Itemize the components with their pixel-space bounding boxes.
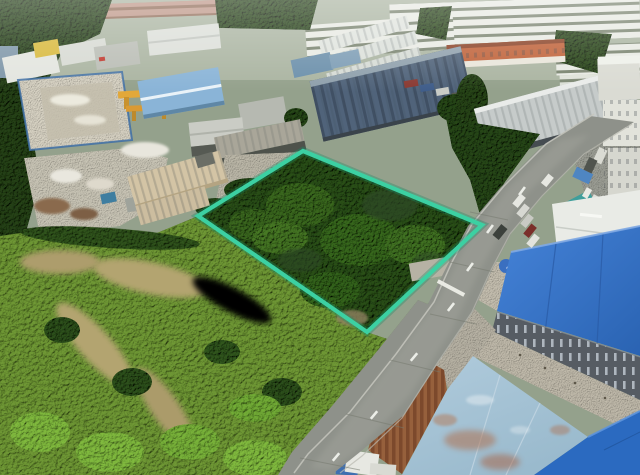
shophouse-windows (604, 100, 640, 200)
atmospheric-haze (0, 0, 640, 92)
grass-bright (76, 432, 144, 472)
construction-debris (74, 115, 106, 125)
grass-bright (223, 440, 287, 475)
apron-speck (604, 397, 607, 400)
debris-pile (86, 178, 114, 190)
scrap-pile (34, 198, 70, 214)
bush-clump (44, 317, 80, 343)
bush-clump (112, 368, 152, 396)
apron-speck (574, 382, 577, 385)
rust-streak (433, 414, 457, 426)
construction-debris (50, 94, 90, 106)
scene-layers (0, 0, 640, 475)
canopy-shadow (278, 248, 322, 272)
grass-bright (160, 424, 220, 460)
roof-scuff (466, 395, 494, 405)
grass-bright (10, 412, 70, 452)
roof-scuff (510, 426, 530, 434)
aerial-photo (0, 0, 640, 475)
rust-streak (444, 430, 496, 450)
bush-clump (204, 340, 240, 364)
rust-streak (480, 454, 520, 470)
scrap-pile (70, 208, 98, 220)
scene (0, 0, 640, 475)
debris-pile (121, 142, 169, 158)
apron-speck (519, 354, 522, 357)
grass-bright (229, 394, 281, 422)
dirt-patch (20, 250, 100, 274)
apron-speck (544, 367, 547, 370)
small-white-building (370, 463, 397, 475)
rust-streak (550, 425, 570, 435)
gantry-crane-leg (132, 111, 136, 121)
debris-pile (50, 169, 82, 183)
